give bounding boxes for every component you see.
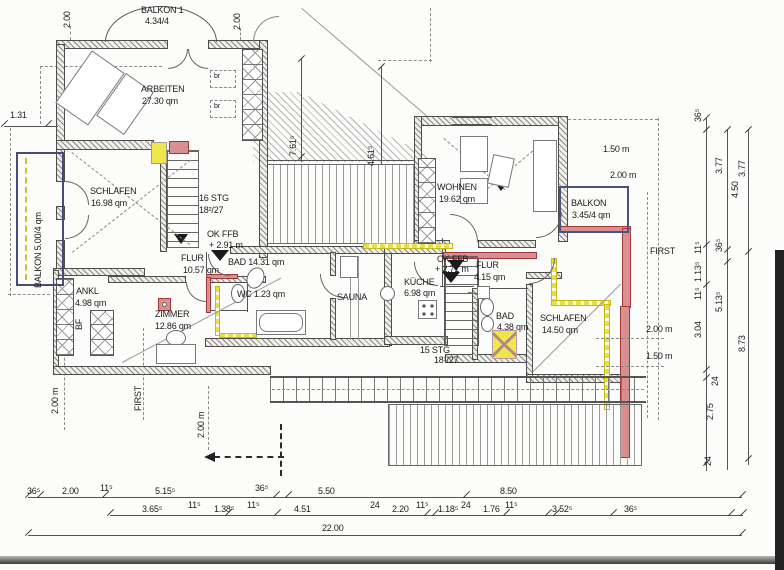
dim-line [748,130,749,465]
room-label: SCHLAFEN [90,186,136,196]
dim-label: 11⁵ [505,500,517,510]
room-label: BALKON 5.00/4 qm [33,180,43,288]
new-wall-red [206,277,211,313]
bathtub-inner [259,313,303,332]
floor-plan: BALKON 1 4.34/4 ARBEITEN 27.30 qm SCHLAF… [0,0,784,570]
armchair [460,136,488,172]
dim-tick [740,509,747,516]
dim-label: 1.13⁵ [693,256,703,282]
level-label: + 2.91 m [209,240,243,250]
door-arc [65,215,89,239]
room-area: 4.38 qm [497,322,528,332]
dim-label: 3.77 [714,152,724,174]
dim-label: 36⁵ [693,104,703,122]
dim-label: 5.15⁵ [155,486,175,496]
dim-label: 2.20 [392,504,409,514]
stove [418,300,437,319]
dim-tick [739,491,746,498]
deck-edge [265,160,415,161]
room-label: FLUR [181,253,204,263]
scan-shadow-right [775,250,784,570]
closet-x-hatch [418,158,436,244]
room-label: ARBEITEN [141,84,184,94]
sauna-oven [340,256,358,278]
dim-line [381,66,382,164]
desk [156,344,196,364]
heater-yellow [151,142,167,164]
dim-line [110,515,743,516]
stair-label: 15 STG [420,345,450,355]
dim-label: 3.65⁵ [142,504,162,514]
closet-label: BF [74,314,84,330]
roof-dashed-line [378,60,432,61]
roof-valley-line [301,8,430,119]
window [452,117,492,125]
room-label: BALKON [571,198,606,208]
room-area: 12.86 qm [155,321,191,331]
wall [53,268,145,276]
room-area: 4.98 qm [75,298,106,308]
demolition-wall-yellow [219,333,257,338]
ridge-first-line [647,192,648,418]
wall [56,140,154,150]
dim-label: 2.00 m [50,378,60,414]
new-wall-red [622,228,631,308]
door-arc [65,181,89,205]
demolition-wall-yellow [363,243,453,249]
level-marker [211,250,229,261]
stair-label: 18²/27 [199,205,223,215]
dim-label: 24 [461,500,471,510]
scan-shadow-bottom [0,556,784,564]
wall [205,338,390,347]
dim-label: 11⁵ [247,500,259,510]
roof-dashed-line [430,8,431,62]
dim-label: 1.18⁵ [438,504,458,514]
dim-label: 2.00 m [196,402,206,438]
dim-line [28,535,742,536]
room-area: 10.57 qm [183,265,219,275]
stove-old-red [169,141,189,154]
dim-label: 22.00 [322,523,344,533]
room-label: BALKON 1 [141,5,183,15]
dim-label: 1.31 [10,110,27,120]
dim-label: 1.76 [483,504,500,514]
axis-line [214,456,284,458]
dim-label: 36⁵ [255,483,268,493]
room-label: ZIMMER [155,309,189,319]
dim-dash [596,366,664,367]
dim-label: 4.61⁵ [366,128,376,166]
dim-dash [70,26,71,40]
room-area: 3.45/4 qm [572,210,610,220]
roof-dashed-line [8,294,50,295]
upper-terrace [265,164,415,244]
furniture-label: br [214,103,220,111]
dim-line [727,130,728,470]
wall [330,298,336,340]
door-arc [188,49,208,69]
dim-label: 2.00 [232,4,242,30]
room-label: FLUR [476,260,499,270]
railing-arc-small [253,16,279,42]
room-label: BAD 14.31 qm [228,257,284,267]
dim-label: 2.00 m [646,324,672,334]
roof-dashed-line [563,119,658,120]
dim-label: 24 [710,372,720,386]
dim-line [28,497,742,498]
dim-label: 5.50 [318,486,335,496]
room-label: ANKL [76,286,99,296]
deck-railing-dash [272,389,644,390]
dim-label: 2.00 [62,2,72,28]
wall [478,240,536,248]
room-area: 4.15 qm [474,272,505,282]
level-label: OK FFB [437,254,468,264]
sofa [533,140,557,212]
dim-label: 11⁵ [693,238,703,254]
dim-label: 1.50 m [603,144,629,154]
washing-machine [477,286,490,299]
dim-label: 3.04 [693,314,703,338]
room-area: 19.62 qm [439,194,475,204]
dim-label: 11⁵ [188,500,200,510]
shower-yellow [492,330,517,359]
dim-label: 3.77 [737,155,747,177]
column-dot [162,302,167,307]
wall [330,252,336,276]
room-area: 6.98 qm [404,288,435,298]
dim-label: 8.50 [500,486,517,496]
room-area: 4.34/4 [145,16,169,26]
room-label: SCHLAFEN [540,313,586,323]
first-label: FIRST [133,381,143,411]
table [487,154,515,188]
stair-label: 18¹/27 [434,355,458,365]
dim-label: 36⁵ [624,504,637,514]
sink [480,298,494,316]
first-label: FIRST [650,246,675,256]
dim-label: 2.00 m [610,170,636,180]
room-area: 16.98 qm [91,198,127,208]
dim-label: 7.61⁵ [288,118,298,156]
dim-dash [240,28,241,40]
dim-dash [596,338,664,339]
dim-label: 2.75 [705,396,715,420]
lower-terrace [388,404,642,466]
dim-label: 11⁵ [416,500,428,510]
dim-label: 2.00 [62,486,79,496]
dim-line [301,58,302,162]
wall-thin [207,310,247,311]
closet-x-hatch [242,49,263,141]
furniture-label: br [214,73,220,81]
wall [108,276,186,283]
dim-label: 1.50 m [646,351,672,361]
wall [384,336,448,345]
wall [526,284,533,380]
axis-line [280,424,282,476]
dim-label: 4.50 [730,176,740,198]
roof-dashed-line [40,66,41,124]
dim-label: 4.51 [294,504,311,514]
dim-label: 5.13⁵ [714,286,724,312]
dim-line [4,126,58,127]
wall [53,366,271,375]
left-balcony-yellow-line [25,158,27,280]
stair-label: 16 STG [199,193,229,203]
door-arc [168,49,188,69]
level-label: OK FFB [207,229,238,239]
kitchen-sink [380,286,395,301]
closet-x-hatch [56,278,74,356]
level-label: + 2.71 m [435,264,469,274]
axis-arrow [204,452,215,462]
dim-label: 24 [370,500,380,510]
room-label: SAUNA [337,292,367,302]
door-arc [450,214,478,242]
dim-tick [739,529,746,536]
closet-x-hatch [90,310,114,356]
room-area: 27.30 qm [142,96,178,106]
room-label: WC 1.23 qm [237,289,285,299]
porch-roof-hatch [253,92,431,162]
roof-dashed-line [208,386,209,450]
dim-label: 36⁵ [714,234,724,252]
roof-dashed-line [10,128,11,296]
room-label: KÜCHE [404,277,435,287]
dim-label: 8.73 [737,328,747,352]
door-arc [186,282,206,302]
room-area: 14.50 qm [542,325,578,335]
dim-label: 11⁵ [693,284,703,300]
room-label: WOHNEN [437,182,477,192]
wall [416,116,568,126]
roof-dashed-line [658,118,659,420]
room-label: BAD [496,311,514,321]
